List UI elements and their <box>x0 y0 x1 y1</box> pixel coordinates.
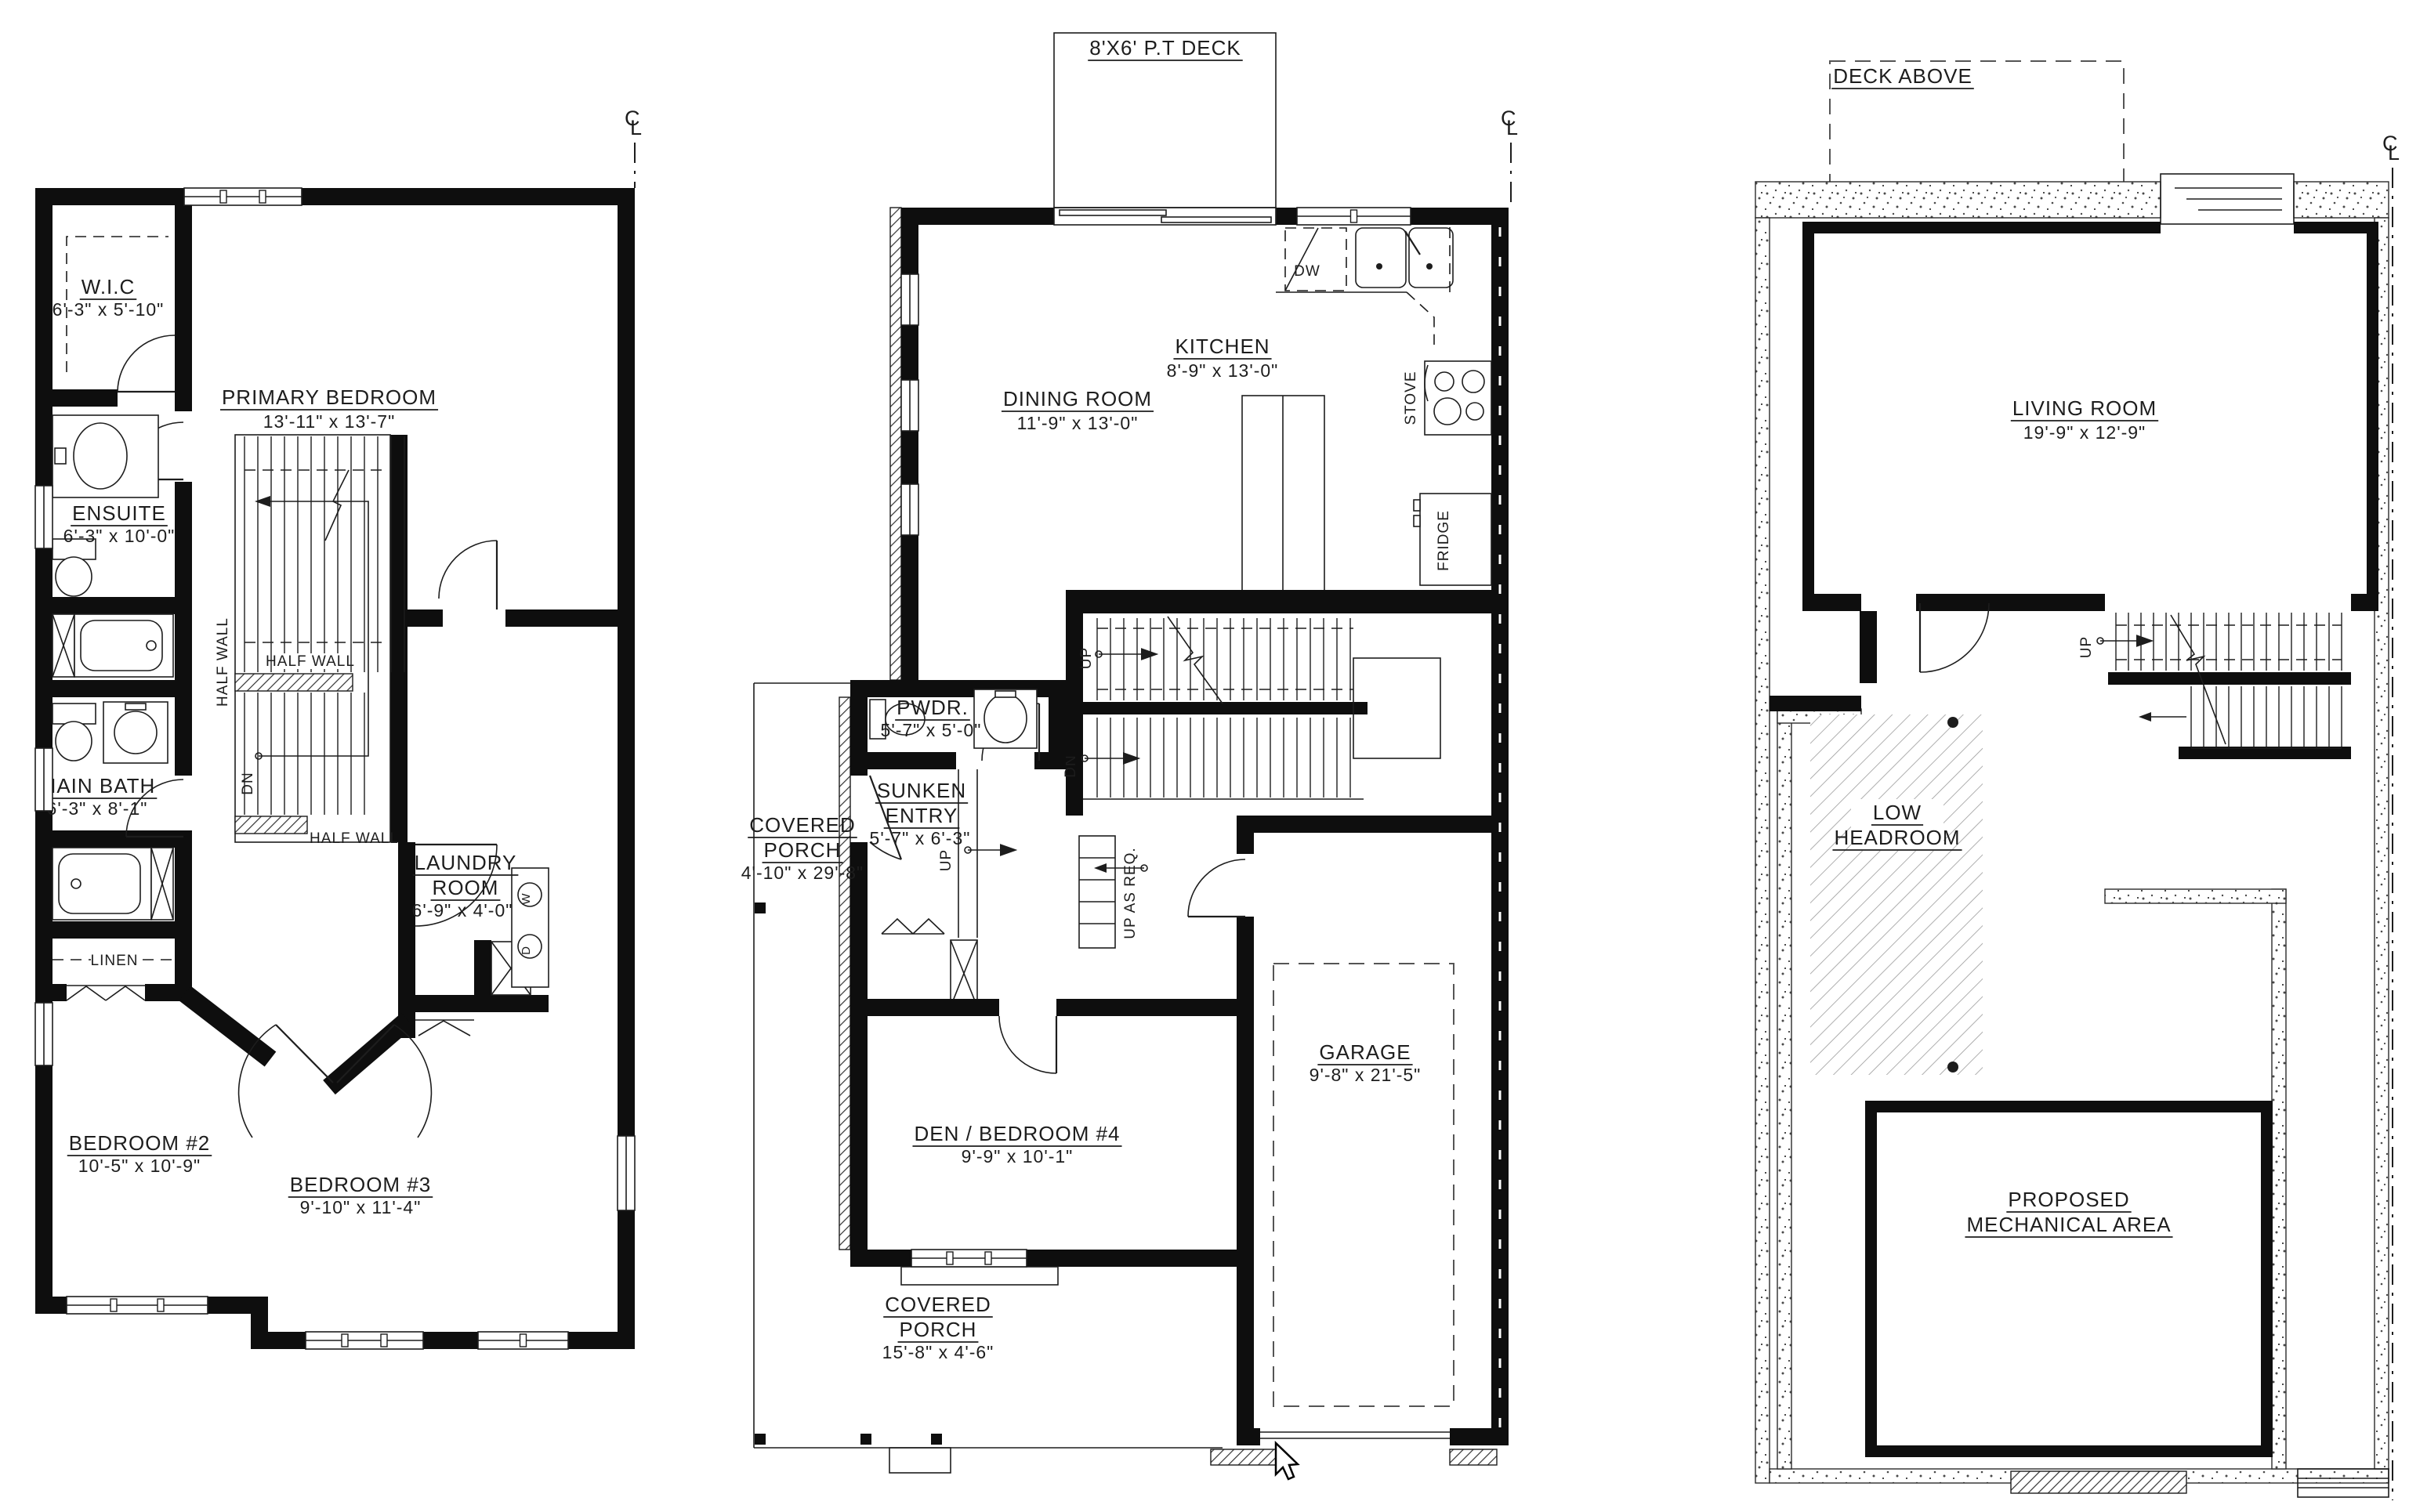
patio-door <box>1054 208 1276 225</box>
stair-treads <box>245 693 364 815</box>
sink <box>1356 228 1406 288</box>
room-labels: DINING ROOM 11'-9" x 13'-0" KITCHEN 8'-9… <box>1002 335 1278 433</box>
room-name: ENTRY <box>886 804 958 827</box>
window <box>478 1332 568 1349</box>
room-name: DINING ROOM <box>1003 387 1152 411</box>
window <box>1297 208 1411 225</box>
dishwasher <box>1285 228 1346 291</box>
up-label: UP <box>938 849 955 871</box>
svg-text:L: L <box>2388 141 2400 165</box>
down-label: DN <box>240 772 256 794</box>
room-dims: 10'-5" x 10'-9" <box>78 1156 201 1176</box>
half-wall-hatch <box>235 674 353 691</box>
room-name: PRIMARY BEDROOM <box>222 385 437 409</box>
room-dims: 19'-9" x 12'-9" <box>2023 422 2146 443</box>
deck-above-label: DECK ABOVE <box>1833 64 1972 88</box>
mechanical-area: PROPOSED MECHANICAL AREA <box>1965 1188 2172 1237</box>
covered-porch-left: COVERED PORCH 4'-10" x 29'-8" COVERED PO… <box>741 683 1223 1473</box>
half-wall-hatch <box>235 816 307 834</box>
room-name: BEDROOM #3 <box>290 1173 432 1196</box>
toilet-tank <box>53 704 96 724</box>
washer-label: W <box>520 892 533 904</box>
room-name: LAUNDRY <box>415 851 517 874</box>
low-headroom: LOW HEADROOM <box>1810 714 1983 1075</box>
room-dims: 15'-8" x 4'-6" <box>882 1342 994 1362</box>
stairwell: HALF WALL HALF WALL HALF WALL DN <box>215 435 404 847</box>
window <box>35 486 53 548</box>
room-name: KITCHEN <box>1175 335 1270 358</box>
sink-basin <box>114 711 157 754</box>
stove <box>1425 361 1491 435</box>
siding-hatch <box>839 697 850 1250</box>
mouse-cursor <box>1276 1443 1298 1479</box>
room-name: COVERED <box>885 1293 991 1316</box>
second-floor-plan: C L <box>35 107 643 1349</box>
dishwasher-label: DW <box>1294 263 1320 280</box>
up-label: UP <box>2078 636 2095 658</box>
sink-basin <box>984 694 1027 743</box>
room-name: SUNKEN <box>877 779 966 802</box>
stair-treads <box>1097 718 1350 798</box>
sunken-entry: UP SUNKEN ENTRY 5'-7" x 6'-3" <box>870 769 1015 1007</box>
room-name: BEDROOM #2 <box>69 1131 211 1155</box>
svg-text:L: L <box>630 116 643 139</box>
room-dims: 5'-7" x 5'-0" <box>881 720 982 740</box>
doors <box>1920 603 1989 672</box>
deck: 8'X6' P.T DECK <box>1054 33 1276 208</box>
room-name: W.I.C <box>82 275 136 298</box>
room-dims: 9'-9" x 10'-1" <box>962 1146 1074 1167</box>
up-label: UP <box>1078 647 1095 669</box>
room-name: PORCH <box>900 1318 977 1341</box>
room-name: DEN / BEDROOM #4 <box>914 1122 1120 1145</box>
room-name: ENSUITE <box>72 501 166 525</box>
window <box>35 748 53 811</box>
washer-dryer: W D <box>512 868 549 987</box>
floor-plan-sheet: C L <box>0 0 2409 1512</box>
room-dims: 11'-9" x 13'-0" <box>1017 413 1139 433</box>
low-headroom-label: LOW <box>1873 801 1922 824</box>
stair-treads <box>2191 686 2342 747</box>
mechanical-label: PROPOSED <box>2008 1188 2129 1211</box>
room-dims: 4'-10" x 29'-8" <box>741 863 864 883</box>
up-as-req-label: UP AS REQ. <box>1122 847 1139 939</box>
mechanical-label: MECHANICAL AREA <box>1966 1213 2171 1236</box>
room-dims: 8'-9" x 13'-0" <box>1167 360 1279 381</box>
window <box>901 484 918 535</box>
half-wall-label: HALF WALL <box>215 617 231 707</box>
window <box>901 380 918 431</box>
centerline-icon: C L <box>625 107 643 188</box>
fridge <box>1420 494 1491 585</box>
room-name: MAIN BATH <box>39 774 156 798</box>
svg-text:L: L <box>1506 116 1519 139</box>
toilet-bowl <box>56 557 92 596</box>
half-wall-label: HALF WALL <box>266 653 355 670</box>
room-dims: 6'-3" x 5'-10" <box>53 299 165 320</box>
room-dims: 5'-7" x 6'-3" <box>870 828 971 848</box>
stair-arrow <box>259 501 368 756</box>
room-dims: 6'-3" x 10'-0" <box>63 526 176 546</box>
stairwell: UP DN <box>1063 590 1491 816</box>
window-well <box>2161 174 2294 224</box>
window <box>911 1250 1027 1267</box>
stair-treads <box>2116 613 2342 671</box>
room-dims: 9'-8" x 21'-5" <box>1310 1065 1422 1085</box>
linen-label: LINEN <box>91 953 139 969</box>
stair-treads <box>1097 618 1350 700</box>
sink <box>1409 228 1453 288</box>
window <box>184 188 302 205</box>
dryer-label: D <box>520 946 533 955</box>
low-headroom-label: HEADROOM <box>1834 826 1960 849</box>
doors <box>118 335 497 1138</box>
room-labels: LIVING ROOM 19'-9" x 12'-9" <box>2011 396 2158 443</box>
stairwell: UP <box>2078 613 2351 748</box>
toilet-bowl <box>56 722 92 761</box>
room-name: PORCH <box>764 838 842 862</box>
main-floor-plan: C L 8'X6' P.T DECK <box>741 33 1519 1473</box>
window <box>901 274 918 325</box>
room-name: GARAGE <box>1319 1040 1411 1064</box>
sink-basin <box>74 423 127 489</box>
half-wall-label: HALF WALL <box>310 830 399 847</box>
room-dims: 6'-9" x 4'-0" <box>412 900 513 921</box>
angled-wall <box>329 1020 408 1087</box>
stove-label: STOVE <box>1403 371 1419 425</box>
room-dims: 6'-3" x 8'-1" <box>47 798 148 819</box>
den: DEN / BEDROOM #4 9'-9" x 10'-1" <box>850 999 1237 1285</box>
room-name: ROOM <box>433 876 499 899</box>
room-name: COVERED <box>749 813 856 837</box>
room-name: PWDR. <box>897 696 969 719</box>
window <box>67 1297 208 1314</box>
kitchen-fixtures: DW STOVE FRIDGE <box>1242 227 1491 591</box>
window <box>35 1003 53 1065</box>
centerline-icon: C L <box>1501 107 1519 205</box>
angled-wall <box>185 993 270 1059</box>
room-dims: 13'-11" x 13'-7" <box>263 411 396 432</box>
fridge-label: FRIDGE <box>1436 510 1452 571</box>
garage-steps: UP AS REQ. <box>1079 836 1245 948</box>
vehicle-outline <box>1273 964 1454 1406</box>
basement-plan: C L DECK ABOVE <box>1755 61 2400 1500</box>
room-name: LIVING ROOM <box>2012 396 2157 420</box>
room-dims: 9'-10" x 11'-4" <box>300 1197 422 1217</box>
window <box>618 1136 635 1210</box>
window <box>306 1332 423 1349</box>
stair-treads <box>245 436 404 672</box>
deck-label: 8'X6' P.T DECK <box>1089 36 1241 60</box>
siding-hatch <box>890 208 901 680</box>
